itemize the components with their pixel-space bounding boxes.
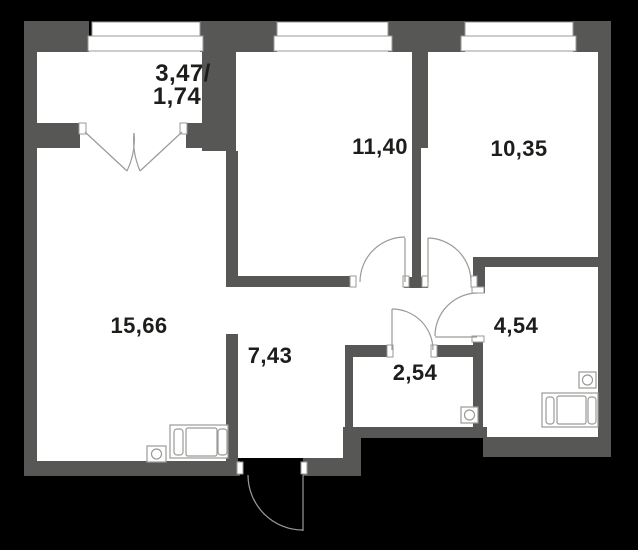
drain-hole [583,375,593,385]
room-a-floor [230,51,413,277]
floors [37,51,600,461]
room-a-area: 11,40 [352,134,408,159]
passage-opening [224,286,240,336]
sink-bowl [152,449,162,459]
wall-segment [226,151,238,287]
wall-segment [473,257,598,267]
sink-icon [147,446,166,462]
wall-segment [343,427,487,438]
door-jamb [350,276,356,287]
wall-segment [433,345,477,357]
floor-plan: 3,47/ 1,74 11,40 10,35 15,66 7,43 2,54 4… [0,0,638,550]
stove-left-grate [174,429,183,455]
stove-right-grate [218,429,227,455]
bathtub-right [588,397,596,424]
room-a-window-sill [274,36,392,51]
door-jamb [422,276,428,287]
drain-hole [465,410,475,420]
wall-segment [186,123,236,148]
room-b-window [465,22,573,36]
wall-segment [343,438,361,476]
door-jamb [301,462,307,474]
door-jamb [431,345,437,357]
door-jamb [237,462,243,474]
wall-segment [200,21,277,52]
wall-segment [412,48,428,148]
bathtub-left [546,397,554,424]
hallway-floor-lower [238,287,345,458]
room-b-area: 10,35 [490,136,547,161]
living-room-area: 15,66 [110,313,167,338]
wc-door-opening [387,344,435,358]
balcony-window-sill [88,36,203,51]
wall-segment [24,21,89,52]
stove-icon [170,425,228,458]
bathtub-basin [557,396,586,424]
bathtub-icon [542,393,598,427]
wc-drain-icon [461,407,478,423]
wall-segment [24,21,37,476]
balcony-area-reduced: 1,74 [153,83,202,110]
hallway-area: 7,43 [248,343,292,368]
wall-segment [345,345,353,427]
wall-segment [388,21,465,52]
bathroom-door-opening [471,291,483,339]
wall-segment [226,276,356,287]
room-b-window-sill [461,36,576,51]
balcony-window [92,22,200,36]
wc-area: 2,54 [393,360,438,385]
room-b-niche-floor [421,258,473,288]
wall-segment [483,437,611,457]
door-jamb [471,276,477,287]
wall-segment [24,461,240,476]
living-room-floor [37,147,227,461]
door-jamb [403,276,409,287]
wall-segment [412,148,421,278]
room-a-window [277,22,388,36]
room-a-door-opening [350,275,410,289]
bathroom-area: 4,54 [494,313,539,338]
bathroom-drain-icon [579,372,596,388]
wall-segment [598,45,611,457]
door-jamb [472,287,484,293]
stove-center [186,428,217,456]
wall-segment [24,123,80,148]
